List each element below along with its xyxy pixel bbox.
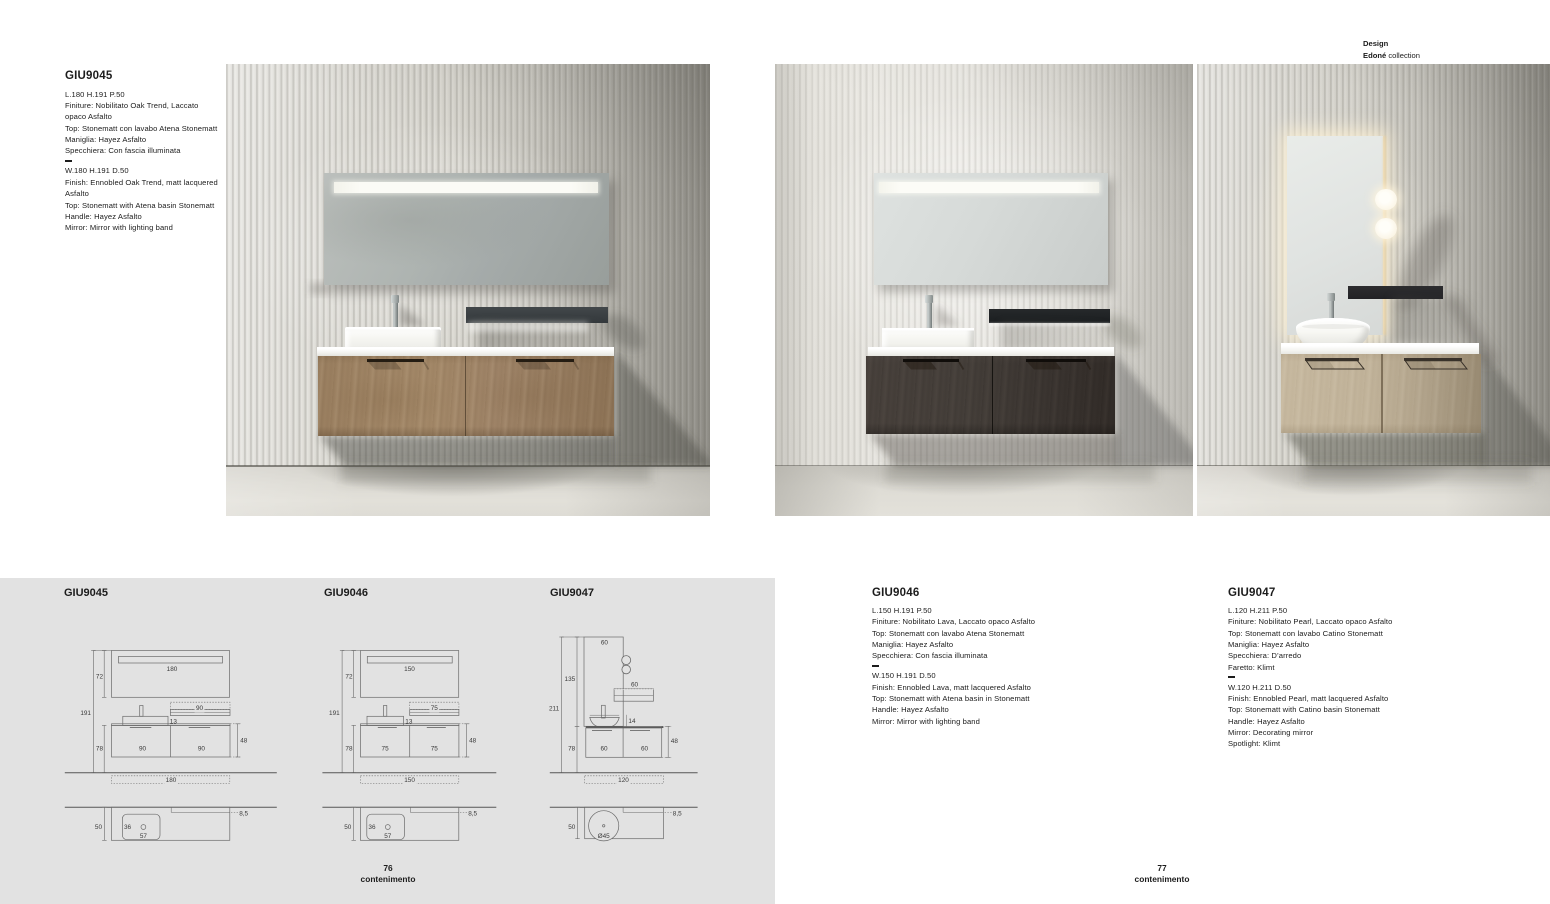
svg-text:50: 50 bbox=[568, 824, 576, 831]
svg-text:14: 14 bbox=[628, 718, 636, 725]
svg-text:60: 60 bbox=[600, 745, 608, 752]
svg-text:150: 150 bbox=[404, 666, 415, 673]
svg-text:60: 60 bbox=[631, 682, 639, 689]
svg-text:120: 120 bbox=[618, 777, 629, 784]
svg-text:57: 57 bbox=[140, 833, 148, 840]
svg-text:Ø45: Ø45 bbox=[598, 833, 611, 840]
svg-text:36: 36 bbox=[124, 824, 132, 831]
svg-text:60: 60 bbox=[601, 639, 609, 646]
svg-text:13: 13 bbox=[170, 718, 178, 725]
svg-text:75: 75 bbox=[431, 705, 439, 712]
svg-text:150: 150 bbox=[404, 777, 415, 784]
svg-text:8,5: 8,5 bbox=[673, 810, 682, 817]
svg-text:48: 48 bbox=[671, 738, 679, 745]
svg-text:191: 191 bbox=[80, 710, 91, 717]
svg-text:78: 78 bbox=[96, 745, 104, 752]
svg-text:50: 50 bbox=[95, 824, 103, 831]
svg-text:211: 211 bbox=[549, 706, 560, 713]
svg-text:75: 75 bbox=[431, 745, 439, 752]
svg-text:13: 13 bbox=[405, 718, 413, 725]
svg-text:GIU9047: GIU9047 bbox=[550, 587, 594, 599]
svg-text:60: 60 bbox=[641, 745, 649, 752]
svg-text:90: 90 bbox=[198, 745, 206, 752]
svg-text:8,5: 8,5 bbox=[239, 810, 248, 817]
svg-text:8,5: 8,5 bbox=[468, 810, 477, 817]
svg-text:180: 180 bbox=[167, 666, 178, 673]
svg-text:72: 72 bbox=[96, 674, 104, 681]
svg-text:75: 75 bbox=[382, 745, 390, 752]
svg-text:78: 78 bbox=[345, 745, 353, 752]
svg-text:135: 135 bbox=[565, 676, 576, 683]
svg-text:72: 72 bbox=[345, 674, 353, 681]
svg-text:90: 90 bbox=[139, 745, 147, 752]
svg-text:50: 50 bbox=[344, 824, 352, 831]
svg-text:GIU9045: GIU9045 bbox=[64, 587, 108, 599]
svg-text:90: 90 bbox=[196, 705, 204, 712]
svg-text:48: 48 bbox=[469, 738, 477, 745]
svg-text:78: 78 bbox=[568, 745, 576, 752]
svg-text:48: 48 bbox=[240, 738, 248, 745]
svg-text:GIU9046: GIU9046 bbox=[324, 587, 368, 599]
svg-text:57: 57 bbox=[384, 833, 392, 840]
svg-text:180: 180 bbox=[166, 777, 177, 784]
svg-text:191: 191 bbox=[329, 710, 340, 717]
svg-text:36: 36 bbox=[368, 824, 376, 831]
